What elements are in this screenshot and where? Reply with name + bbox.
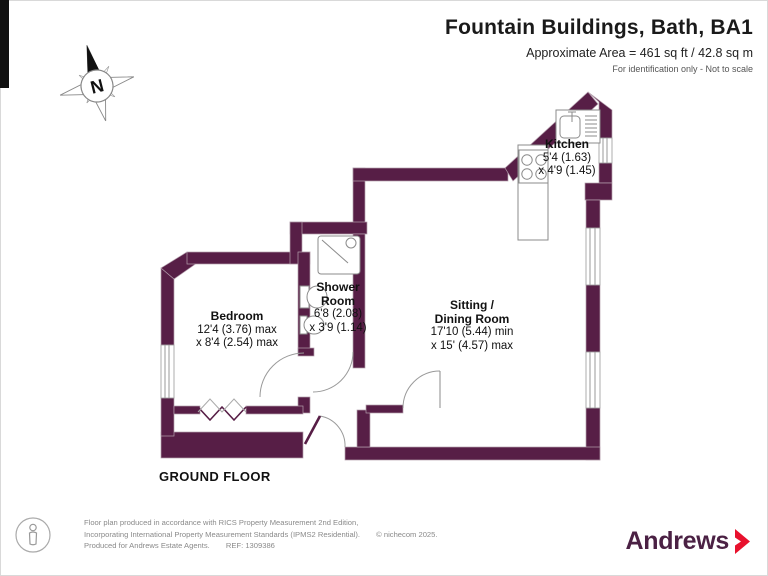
disclaimer-line-2-text: Incorporating International Property Mea… [84, 530, 360, 539]
floor-name: GROUND FLOOR [159, 469, 271, 484]
disclaimer-line-1: Floor plan produced in accordance with R… [84, 517, 438, 529]
sitting-room-dim-2: x 15' (4.57) max [431, 340, 514, 354]
shower-room-name-line1: Shower [309, 281, 366, 295]
footer: Floor plan produced in accordance with R… [0, 514, 768, 570]
bedroom-door [260, 353, 304, 397]
kitchen-dim-1: 5'4 (1.63) [538, 152, 595, 166]
copyright-text: © nichecom 2025. [376, 530, 437, 539]
floorplan-drawing: N [0, 0, 768, 576]
sitting-room-dim-1: 17'10 (5.44) min [431, 326, 514, 340]
floorplan-page: Fountain Buildings, Bath, BA1 Approximat… [0, 0, 768, 576]
sitting-room-name-line2: Dining Room [431, 313, 514, 327]
break-line-zigzag [198, 399, 246, 420]
kitchen-window [599, 138, 612, 163]
disclaimer-text: Floor plan produced in accordance with R… [84, 517, 438, 552]
bedroom-name: Bedroom [196, 310, 278, 324]
compass: N [50, 36, 143, 130]
bedroom-dim-2: x 8'4 (2.54) max [196, 337, 278, 351]
sitting-dining-room-label: Sitting / Dining Room 17'10 (5.44) min x… [431, 299, 514, 353]
sitting-room-door [403, 371, 440, 408]
bedroom-window [161, 345, 174, 398]
sitting-room-window-upper [586, 228, 600, 285]
shower-room-label: Shower Room 6'8 (2.08) x 3'9 (1.14) [309, 281, 366, 335]
shower-room-door [313, 352, 353, 392]
sitting-room-name-line1: Sitting / [431, 299, 514, 313]
disclaimer-line-2: Incorporating International Property Mea… [84, 529, 438, 541]
reference-number: REF: 1309386 [226, 541, 275, 550]
andrews-logo-text: Andrews [626, 527, 729, 556]
shower-room-dim-2: x 3'9 (1.14) [309, 322, 366, 336]
andrews-logo-chevron-icon [734, 528, 754, 555]
andrews-logo: Andrews [626, 527, 754, 556]
bedroom-label: Bedroom 12'4 (3.76) max x 8'4 (2.54) max [196, 310, 278, 351]
shower-room-dim-1: 6'8 (2.08) [309, 308, 366, 322]
person-scale-icon [13, 515, 53, 560]
entrance-door [305, 416, 345, 447]
shower-tray [318, 236, 360, 274]
produced-for-text: Produced for Andrews Estate Agents. [84, 541, 210, 550]
kitchen-name: Kitchen [538, 138, 595, 152]
shower-room-name-line2: Room [309, 295, 366, 309]
kitchen-dim-2: x 4'9 (1.45) [538, 165, 595, 179]
sitting-room-window-lower [586, 352, 600, 408]
disclaimer-line-3: Produced for Andrews Estate Agents. REF:… [84, 540, 438, 552]
kitchen-label: Kitchen 5'4 (1.63) x 4'9 (1.45) [538, 138, 595, 179]
bedroom-dim-1: 12'4 (3.76) max [196, 324, 278, 338]
